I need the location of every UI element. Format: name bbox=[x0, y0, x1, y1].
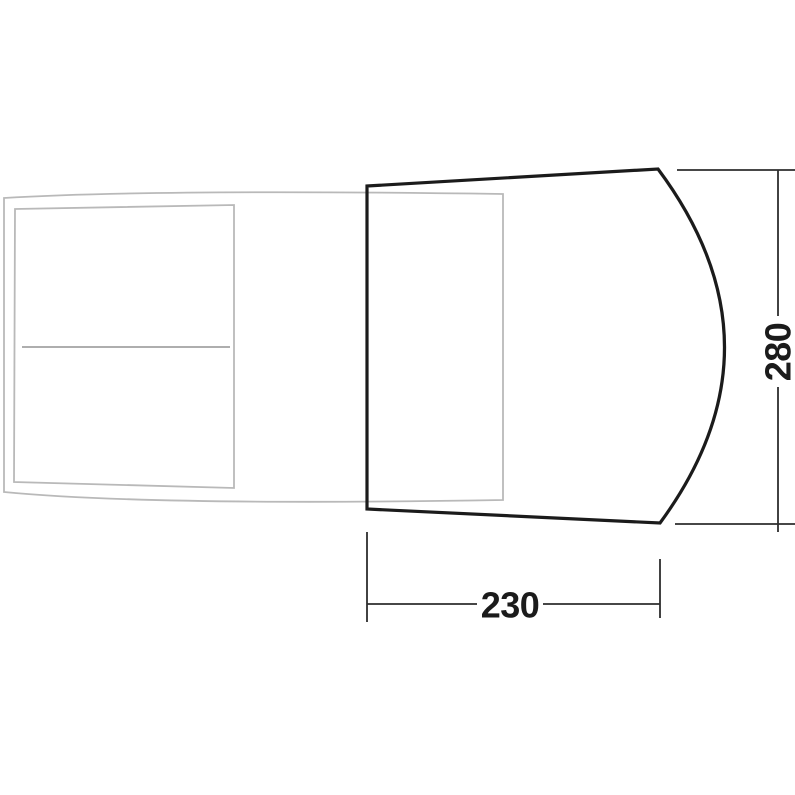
width-dimension-label: 230 bbox=[481, 585, 540, 626]
depth-dimension-label: 280 bbox=[758, 323, 795, 382]
awning-footprint-outline bbox=[367, 169, 725, 523]
diagram-canvas: 230 280 bbox=[0, 0, 795, 795]
awning-dimension-diagram: 230 280 bbox=[0, 0, 795, 795]
